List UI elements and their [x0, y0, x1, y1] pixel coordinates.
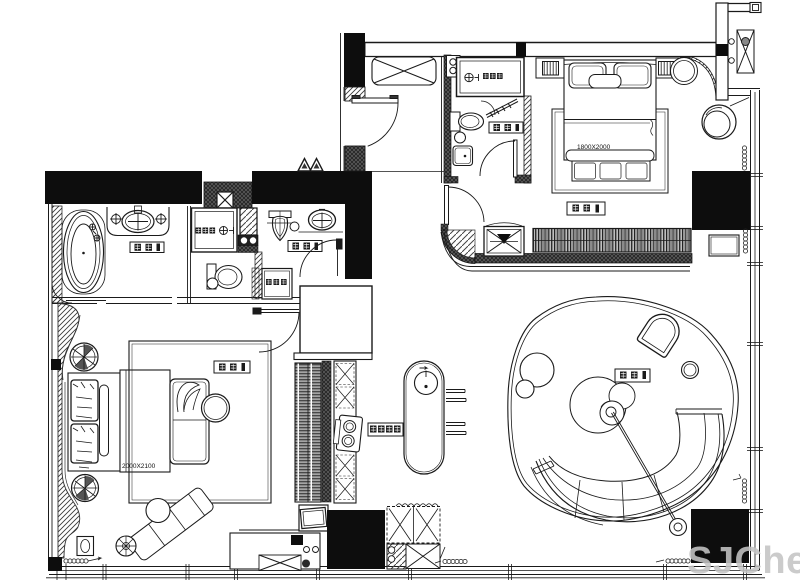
svg-text:2000X2100: 2000X2100 — [122, 463, 156, 470]
svg-text:SJChee: SJChee — [687, 540, 800, 582]
